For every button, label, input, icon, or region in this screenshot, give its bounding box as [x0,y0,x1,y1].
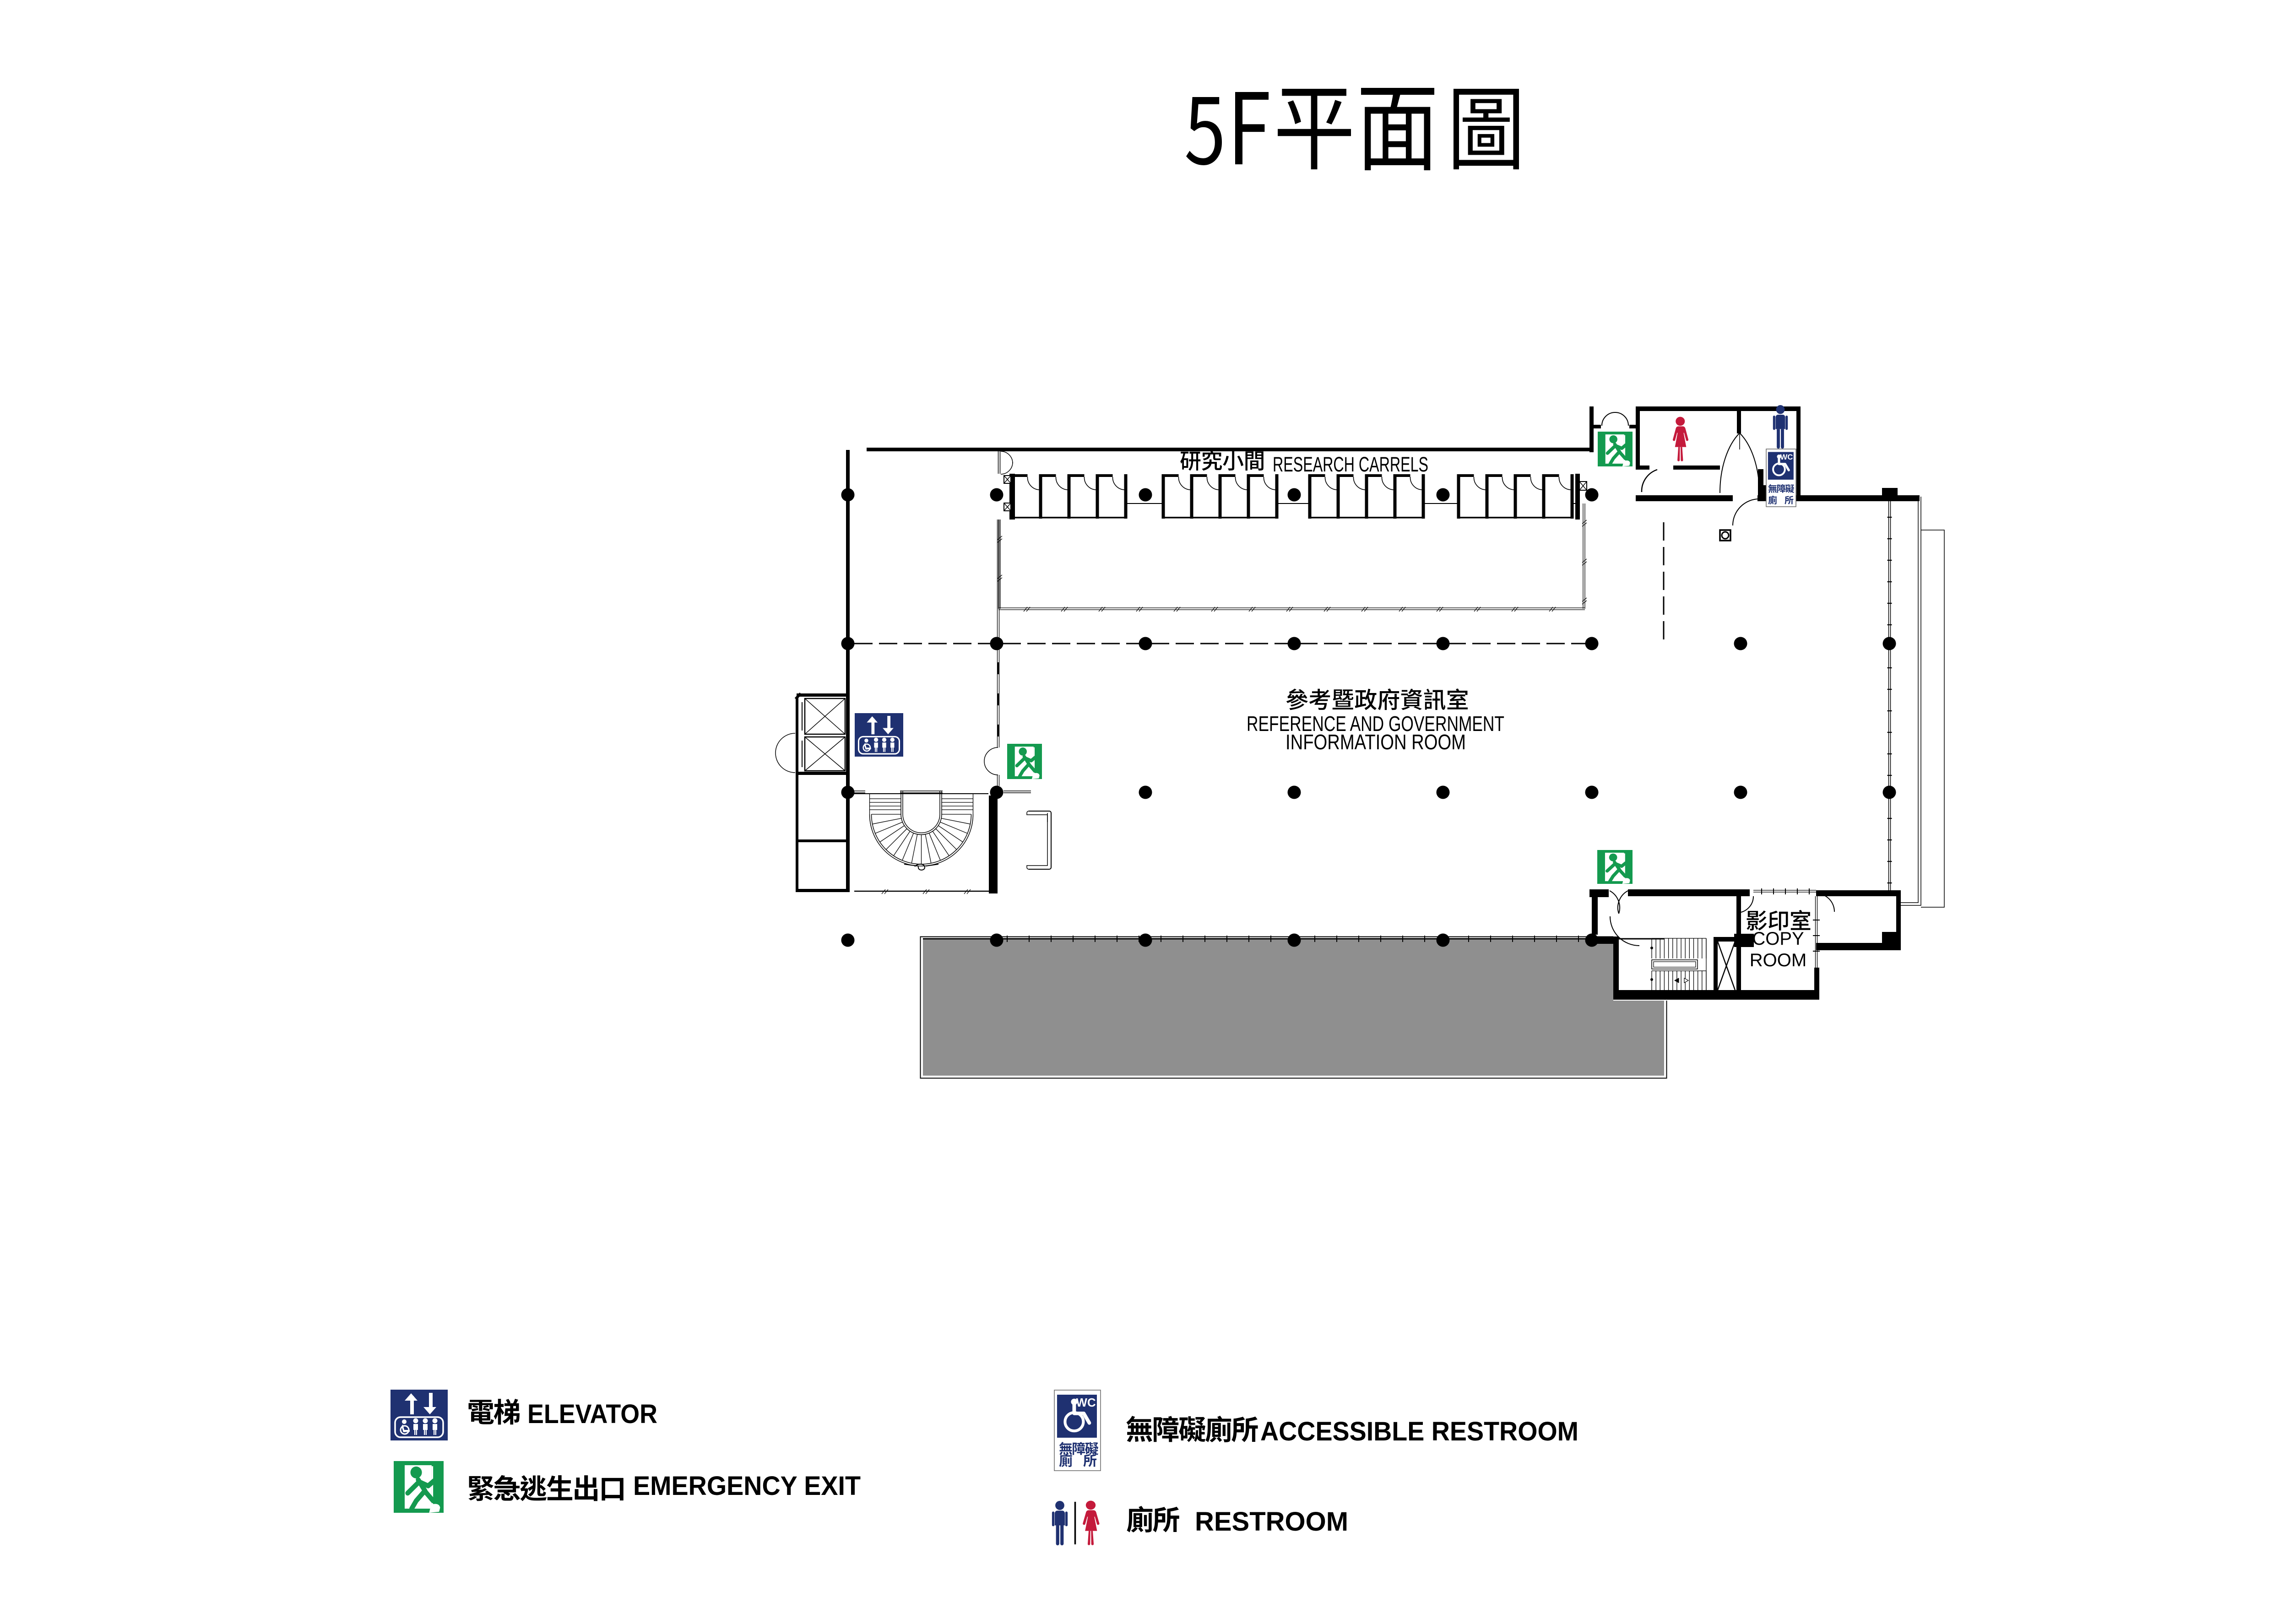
svg-text:ELEVATOR: ELEVATOR [527,1399,657,1429]
svg-text:COPY: COPY [1752,929,1804,949]
svg-text:RESTROOM: RESTROOM [1195,1507,1348,1537]
svg-text:RESEARCH CARRELS: RESEARCH CARRELS [1273,453,1428,476]
svg-text:ACCESSIBLE RESTROOM: ACCESSIBLE RESTROOM [1260,1417,1578,1446]
svg-text:WC: WC [1780,453,1793,461]
svg-text:WC: WC [1076,1396,1096,1409]
svg-text:ROOM: ROOM [1750,950,1806,970]
svg-text:EMERGENCY EXIT: EMERGENCY EXIT [633,1471,861,1501]
svg-text:INFORMATION ROOM: INFORMATION ROOM [1286,730,1466,754]
